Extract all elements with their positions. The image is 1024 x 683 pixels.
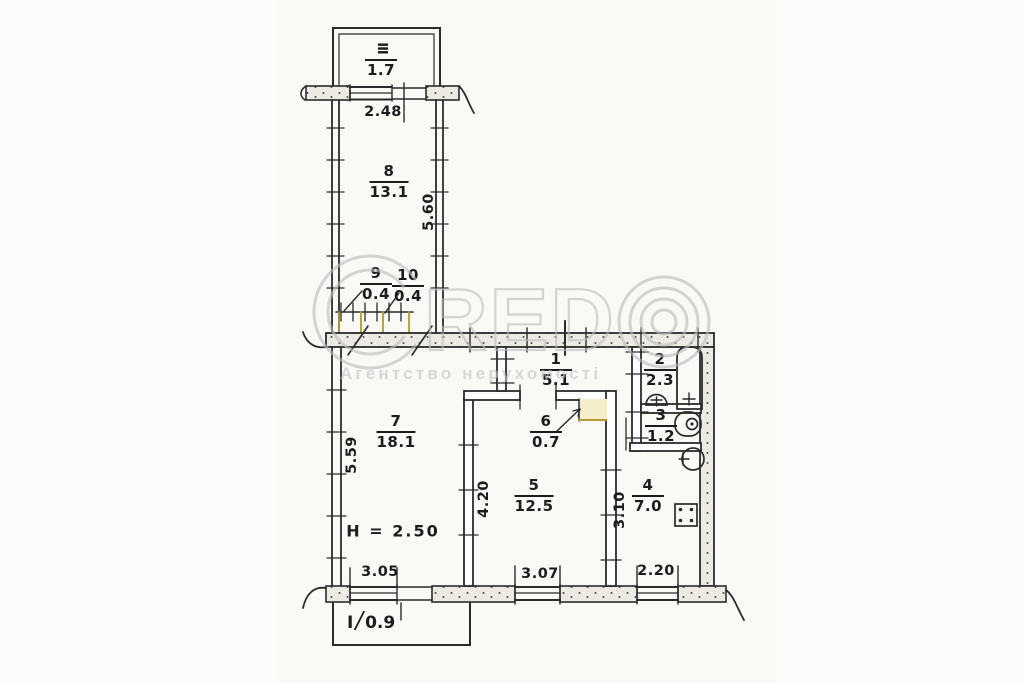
room-label-5: 5 12.5 <box>514 478 553 515</box>
room-label-balcony-top: III 1.7 <box>365 34 397 79</box>
ceiling-height-note: H = 2.50 <box>346 522 439 541</box>
dim-kitchen-side: 3.10 <box>612 491 628 529</box>
dim-room5-side: 4.20 <box>476 480 492 518</box>
floorplan-scan: III 1.7 8 13.1 9 0.4 10 0.4 1 5.1 2 2.3 … <box>0 0 1024 683</box>
dim-bottom-left: 3.05 <box>361 564 399 580</box>
room-label-6: 6 0.7 <box>530 414 562 451</box>
room-label-8: 8 13.1 <box>369 164 408 201</box>
room-label-9: 9 0.4 <box>360 266 392 303</box>
dim-corridor: 5.60 <box>421 193 437 231</box>
room-label-balcony-bottom: I/0.9 <box>347 608 395 634</box>
room-label-2: 2 2.3 <box>644 352 676 389</box>
dim-bottom-center: 3.07 <box>521 566 559 582</box>
dim-top: 2.48 <box>364 104 402 120</box>
room-label-3: 3 1.2 <box>645 408 677 445</box>
room-label-7: 7 18.1 <box>376 414 415 451</box>
plan-labels: III 1.7 8 13.1 9 0.4 10 0.4 1 5.1 2 2.3 … <box>0 0 1024 683</box>
room-label-10: 10 0.4 <box>392 268 424 305</box>
dim-left: 5.59 <box>344 436 360 474</box>
room-label-4: 4 7.0 <box>632 478 664 515</box>
room-label-1: 1 5.1 <box>540 352 572 389</box>
dim-bottom-right: 2.20 <box>637 563 675 579</box>
